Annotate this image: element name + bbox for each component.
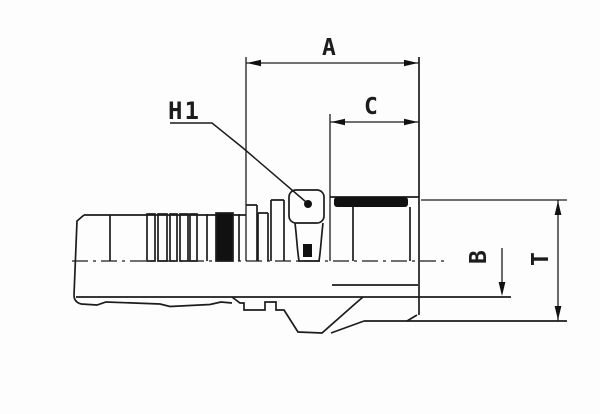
hose-tail-serrations (147, 213, 239, 261)
dim-a-arrow-right (404, 60, 418, 66)
collar-steps (246, 200, 284, 261)
dimension-b (499, 248, 506, 296)
hex-nut (289, 190, 324, 261)
dim-c-arrow-left (331, 119, 345, 125)
fitting-drawing (0, 0, 600, 414)
dim-c-arrow-right (404, 119, 418, 125)
dimension-c-label: C (364, 96, 378, 119)
dimension-b-label: B (467, 244, 491, 270)
dimension-a (246, 57, 419, 261)
h1-leader-line (170, 123, 306, 202)
dimension-a-label: A (322, 37, 336, 60)
dimension-t-label: T (529, 246, 553, 272)
dim-t-arrow-bottom (555, 306, 562, 320)
hex-shadow-mark (303, 244, 312, 257)
h1-label: H1 (168, 99, 201, 123)
dim-b-arrow (499, 282, 506, 296)
technical-drawing-canvas: A C H1 B T (0, 0, 600, 414)
dimension-c (330, 114, 419, 261)
thread-relief-band (334, 197, 408, 207)
hose-tail (74, 213, 511, 307)
dim-a-arrow-left (247, 60, 261, 66)
lower-profile (232, 297, 567, 333)
dim-t-arrow-top (555, 201, 562, 215)
